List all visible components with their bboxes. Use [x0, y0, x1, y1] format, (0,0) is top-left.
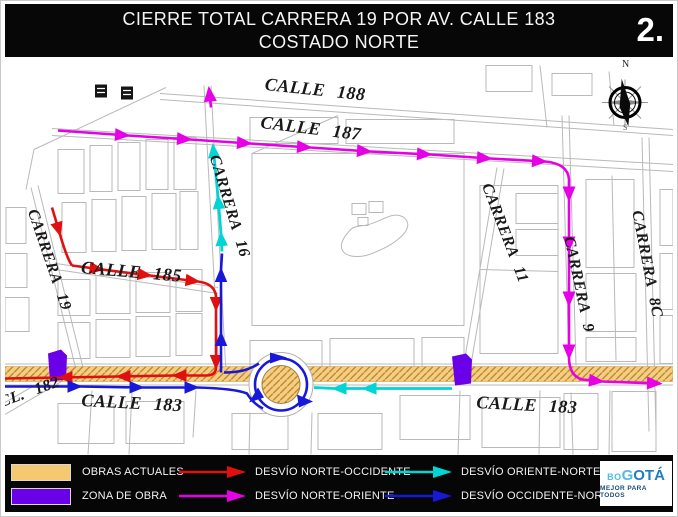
compass-north-label: N [622, 59, 629, 70]
compass-south-label: S [623, 123, 627, 132]
page-number: 2. [636, 11, 664, 49]
desvio-norte-oriente-arrow-icon [177, 489, 247, 503]
building-icons [95, 85, 133, 100]
zona-de-obra-swatch [11, 488, 71, 505]
legend-item-desvio-norte-oriente: DESVÍO NORTE-ORIENTE [177, 487, 394, 505]
desvio-norte-oriente-label: DESVÍO NORTE-ORIENTE [255, 490, 394, 502]
map-canvas: CALLE 188 CALLE 187 CARRERA 16 CARRERA 1… [5, 57, 673, 455]
title-line-2: COSTADO NORTE [5, 31, 673, 54]
desvio-occidente-norte-arrow-icon [383, 489, 453, 503]
page-title: CIERRE TOTAL CARRERA 19 POR AV. CALLE 18… [5, 8, 673, 54]
bogota-logo-g: G [622, 467, 634, 484]
route-desvio-oriente-norte [213, 146, 452, 389]
road-closure-map-page: CIERRE TOTAL CARRERA 19 POR AV. CALLE 18… [0, 0, 678, 517]
desvio-oriente-norte-arrow-icon [383, 465, 453, 479]
desvio-norte-occidente-arrow-icon [177, 465, 247, 479]
title-bar: CIERRE TOTAL CARRERA 19 POR AV. CALLE 18… [5, 4, 673, 57]
obras-actuales-swatch [11, 464, 71, 481]
legend-item-desvio-norte-occidente: DESVÍO NORTE-OCCIDENTE [177, 463, 411, 481]
legend-item-obras-actuales: OBRAS ACTUALES [11, 463, 184, 481]
legend-item-desvio-oriente-norte: DESVÍO ORIENTE-NORTE [383, 463, 600, 481]
legend-item-desvio-occidente-norte: DESVÍO OCCIDENTE-NORTE [383, 487, 617, 505]
bogota-logo-tagline: MEJOR PARA TODOS [600, 486, 672, 499]
desvio-occidente-norte-label: DESVÍO OCCIDENTE-NORTE [461, 490, 617, 502]
bogota-logo-ota: OTÁ [633, 467, 665, 484]
zona-obra-patch-east [452, 354, 472, 386]
desvio-oriente-norte-label: DESVÍO ORIENTE-NORTE [461, 466, 600, 478]
zona-de-obra-label: ZONA DE OBRA [82, 490, 167, 502]
bogota-logo: BOGOTÁ MEJOR PARA TODOS [600, 461, 672, 506]
bogota-logo-wordmark: BOGOTÁ [607, 468, 665, 484]
legend-item-zona-de-obra: ZONA DE OBRA [11, 487, 167, 505]
legend: OBRAS ACTUALES ZONA DE OBRA DESVÍO NORTE… [5, 455, 673, 512]
compass-icon [602, 78, 648, 127]
bogota-logo-bo: BO [607, 472, 622, 482]
obras-actuales-label: OBRAS ACTUALES [82, 466, 184, 478]
title-line-1: CIERRE TOTAL CARRERA 19 POR AV. CALLE 18… [5, 8, 673, 31]
